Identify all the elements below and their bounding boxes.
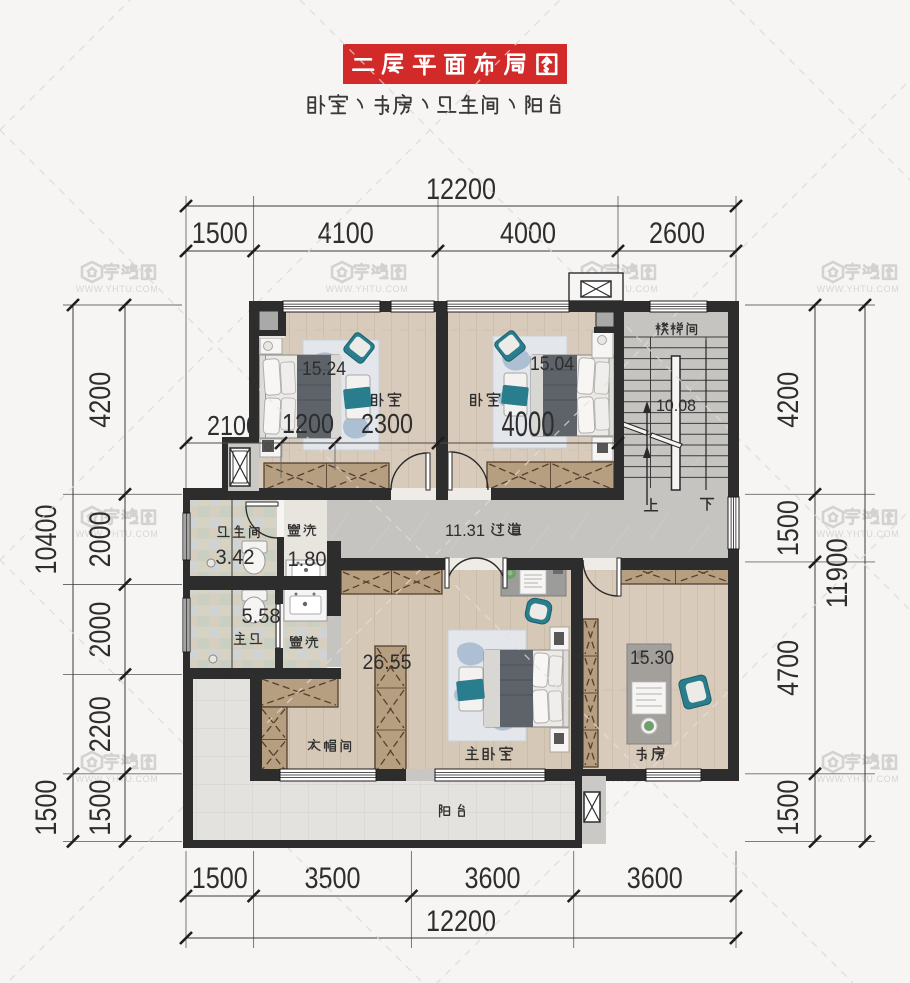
svg-text:2600: 2600 bbox=[649, 217, 705, 250]
svg-text:10.08: 10.08 bbox=[656, 396, 696, 415]
svg-text:1500: 1500 bbox=[772, 780, 805, 836]
svg-text:12200: 12200 bbox=[426, 905, 496, 938]
svg-text:4100: 4100 bbox=[318, 217, 374, 250]
svg-text:1500: 1500 bbox=[192, 862, 248, 895]
svg-text:2000: 2000 bbox=[84, 602, 117, 658]
svg-text:1500: 1500 bbox=[772, 500, 805, 556]
svg-text:2100: 2100 bbox=[207, 410, 259, 441]
svg-text:4200: 4200 bbox=[772, 372, 805, 428]
svg-text:26.55: 26.55 bbox=[363, 651, 412, 674]
svg-text:3600: 3600 bbox=[627, 862, 683, 895]
svg-text:1.80: 1.80 bbox=[288, 548, 327, 571]
svg-text:4700: 4700 bbox=[772, 640, 805, 696]
svg-text:WWW.YHTU.COM: WWW.YHTU.COM bbox=[76, 284, 159, 294]
svg-text:WWW.YHTU.COM: WWW.YHTU.COM bbox=[817, 529, 900, 539]
svg-text:1500: 1500 bbox=[192, 217, 248, 250]
svg-text:2000: 2000 bbox=[84, 511, 117, 567]
svg-text:3.42: 3.42 bbox=[216, 546, 255, 569]
svg-text:12200: 12200 bbox=[426, 173, 496, 206]
svg-text:3600: 3600 bbox=[465, 862, 521, 895]
svg-text:5.58: 5.58 bbox=[242, 605, 281, 628]
svg-text:15.30: 15.30 bbox=[630, 648, 674, 669]
svg-text:1500: 1500 bbox=[84, 780, 117, 836]
svg-text:15.24: 15.24 bbox=[302, 359, 346, 380]
svg-text:4200: 4200 bbox=[84, 372, 117, 428]
svg-text:WWW.YHTU.COM: WWW.YHTU.COM bbox=[326, 284, 409, 294]
svg-text:1200: 1200 bbox=[282, 408, 334, 439]
svg-text:4000: 4000 bbox=[500, 217, 556, 250]
svg-text:15.04: 15.04 bbox=[530, 354, 574, 375]
svg-text:4000: 4000 bbox=[502, 405, 555, 444]
svg-text:3500: 3500 bbox=[305, 862, 361, 895]
svg-text:1500: 1500 bbox=[30, 780, 63, 836]
svg-text:11.31: 11.31 bbox=[445, 521, 485, 540]
svg-text:10400: 10400 bbox=[30, 505, 63, 575]
svg-text:WWW.YHTU.COM: WWW.YHTU.COM bbox=[817, 284, 900, 294]
svg-text:WWW.YHTU.COM: WWW.YHTU.COM bbox=[817, 774, 900, 784]
svg-text:2200: 2200 bbox=[84, 696, 117, 752]
svg-text:2300: 2300 bbox=[361, 408, 413, 439]
